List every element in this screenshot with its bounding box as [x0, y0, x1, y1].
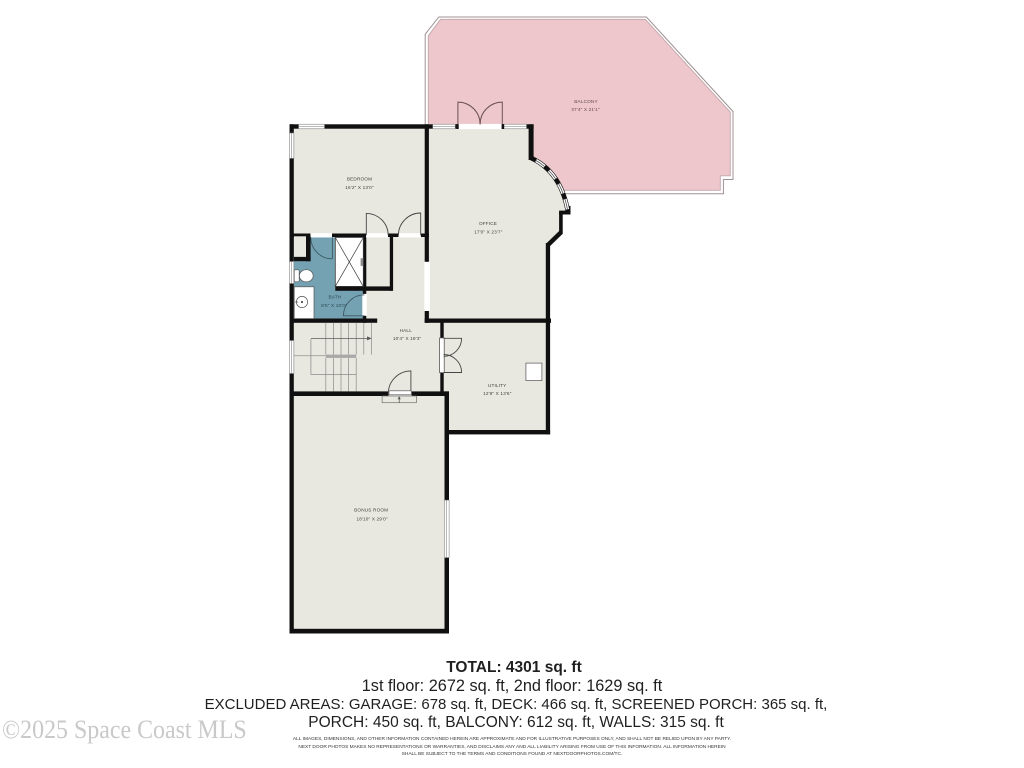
svg-text:16'2" X 13'0": 16'2" X 13'0"	[345, 185, 374, 190]
svg-text:18'10" X 29'0": 18'10" X 29'0"	[356, 516, 387, 521]
svg-text:BATH: BATH	[329, 295, 342, 300]
svg-text:12'9" X 13'6": 12'9" X 13'6"	[483, 391, 512, 396]
svg-text:UTILITY: UTILITY	[488, 383, 507, 388]
svg-text:BEDROOM: BEDROOM	[347, 176, 372, 181]
svg-text:HALL: HALL	[400, 328, 413, 333]
svg-text:37'4" X 21'1": 37'4" X 21'1"	[571, 107, 600, 112]
svg-text:10'4" X 19'3": 10'4" X 19'3"	[393, 336, 422, 341]
svg-text:BONUS ROOM: BONUS ROOM	[354, 507, 388, 512]
svg-text:BALCONY: BALCONY	[574, 99, 598, 104]
svg-text:8'5" X 10'0": 8'5" X 10'0"	[321, 303, 347, 308]
svg-text:17'0" X 23'7": 17'0" X 23'7"	[474, 230, 503, 235]
svg-text:OFFICE: OFFICE	[479, 221, 497, 226]
